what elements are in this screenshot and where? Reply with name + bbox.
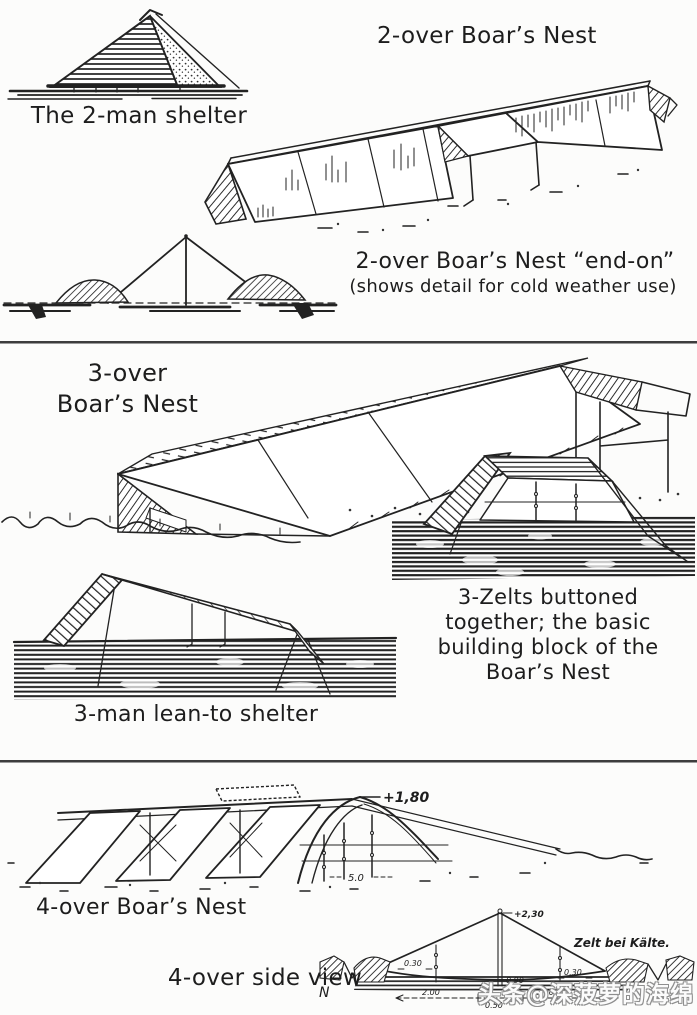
three-zelt-note-line4: Boar’s Nest xyxy=(398,660,697,685)
side-view-apex-label: +2,30 xyxy=(514,910,544,920)
four-over-caption: 4-over Boar’s Nest xyxy=(36,895,246,920)
four-over-ridge-height-label: +1,80 xyxy=(383,790,430,806)
side-view-base-left-label: 2.00 xyxy=(422,988,440,997)
side-view-german-label: Zelt bei Kälte. xyxy=(573,936,670,950)
three-zelt-note-line2: together; the basic xyxy=(398,610,697,635)
three-zelt-note-line1: 3-Zelts buttoned xyxy=(398,585,697,610)
three-zelt-note-line3: building block of the xyxy=(398,635,697,660)
section-divider-1 xyxy=(0,341,697,344)
side-view-caption: 4-over side view xyxy=(135,965,395,991)
scanned-shelter-diagram-page: The 2-man shelter 2-over Boar’s Nest xyxy=(0,0,697,1015)
two-over-boars-nest-figure xyxy=(198,52,697,237)
three-zelt-note: 3-Zelts buttoned together; the basic bui… xyxy=(398,585,697,685)
two-over-title: 2-over Boar’s Nest xyxy=(377,23,597,49)
three-zelt-figure xyxy=(390,424,697,586)
four-over-boars-nest-figure: +1,80 5.0 xyxy=(0,763,697,898)
end-on-title: 2-over Boar’s Nest “end-on” xyxy=(335,249,695,274)
lean-to-caption: 3-man lean-to shelter xyxy=(70,702,322,727)
four-over-span-label: 5.0 xyxy=(348,873,364,884)
end-on-subtitle: (shows detail for cold weather use) xyxy=(328,276,697,297)
end-on-view-figure xyxy=(0,223,340,335)
side-view-left-berm-label: 0.30 xyxy=(404,959,422,968)
lean-to-shelter-figure xyxy=(0,552,400,704)
watermark-text: 头条@深菠萝的海绵宝宝 xyxy=(478,975,697,1015)
